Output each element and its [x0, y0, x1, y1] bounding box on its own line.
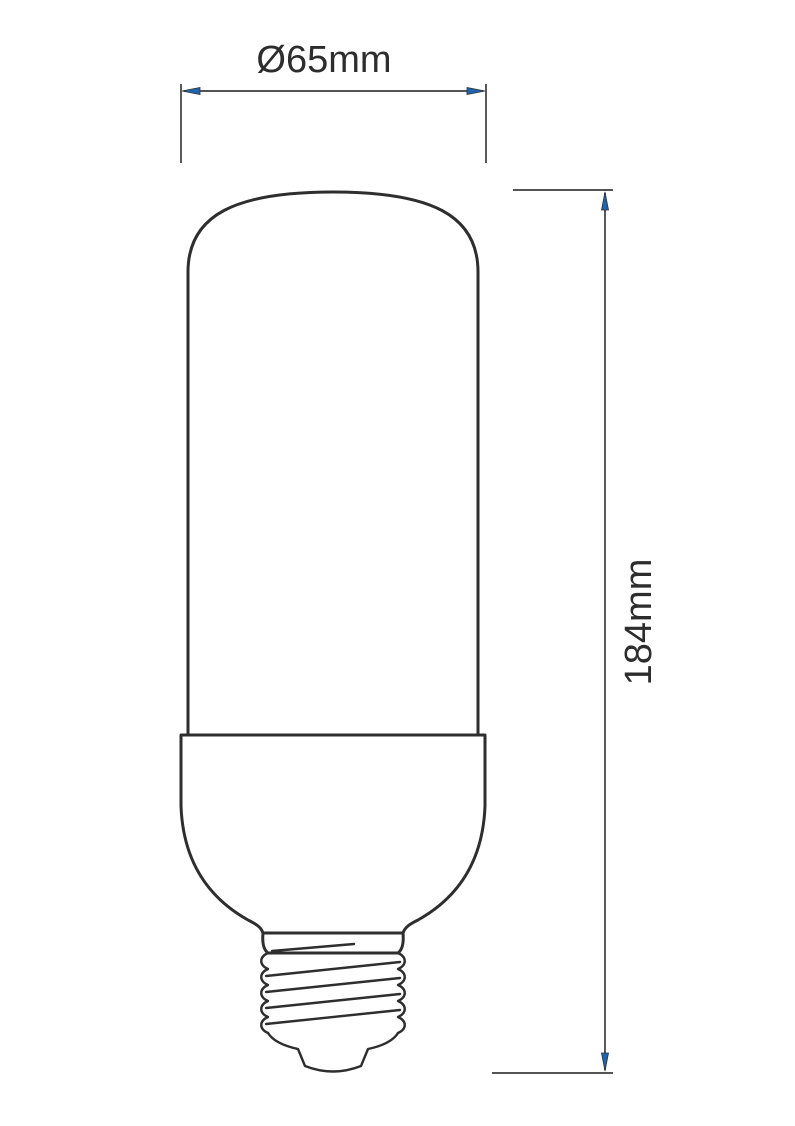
housing-left-outline	[181, 736, 263, 933]
bulb-outline-group	[181, 192, 485, 953]
width-arrow-left-icon	[182, 88, 200, 95]
contact-tip-outline	[268, 1033, 398, 1072]
housing-right-outline	[403, 736, 485, 933]
thread-spiral-line	[266, 994, 400, 1008]
thread-spiral-line	[266, 962, 400, 976]
width-dimension-label: Ø65mm	[256, 39, 391, 81]
screw-base-group	[261, 944, 405, 1072]
width-dimension: Ø65mm	[181, 39, 486, 163]
height-dimension-label: 184mm	[618, 559, 660, 686]
width-arrow-right-icon	[467, 88, 485, 95]
thread-lead-line	[272, 944, 354, 951]
bulb-technical-drawing: Ø65mm 184mm	[0, 0, 795, 1126]
drawing-canvas: Ø65mm 184mm	[0, 0, 795, 1126]
width-dimension-lines	[181, 84, 486, 163]
height-dimension: 184mm	[492, 190, 660, 1073]
thread-spiral-line	[266, 978, 400, 992]
height-arrow-top-icon	[602, 192, 609, 210]
height-dimension-lines	[492, 190, 613, 1073]
glass-tube-outline	[188, 192, 478, 734]
height-arrow-bottom-icon	[602, 1053, 609, 1071]
thread-spiral-line	[266, 1010, 400, 1024]
